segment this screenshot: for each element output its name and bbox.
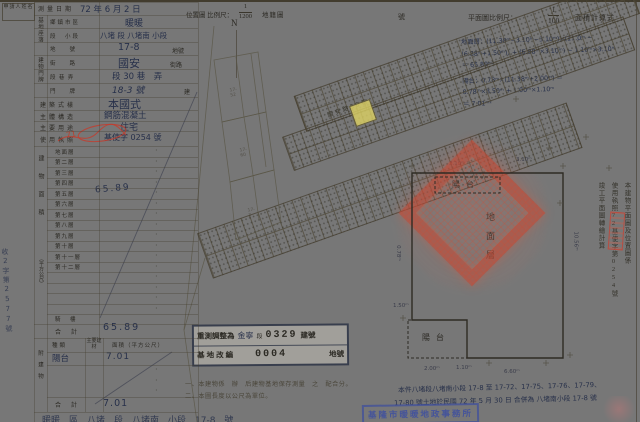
door-row-door-suffix: 建 <box>184 87 190 96</box>
floor-row-label: 地面層 <box>55 148 75 156</box>
location-scale-denominator: 1200 <box>239 13 252 21</box>
right-col-1: 本建物平面圖及位置圖係 <box>620 182 633 352</box>
north-label: N <box>231 18 238 28</box>
parcel-number: 17-60 <box>239 148 248 159</box>
table-hline <box>47 209 198 210</box>
table-hline <box>47 167 198 168</box>
resurvey-stamp-box: 重測調整為 金寧 段 0329 建號 基地改編 0004 地號 <box>192 323 349 366</box>
resurvey-label: 重測調整為 <box>197 330 235 341</box>
floor-row: 地面層 <box>47 146 198 157</box>
table-hline <box>34 83 198 84</box>
door-row-lane-label: 段 巷 弄 <box>50 73 74 81</box>
annex-row-kind: 陽台 <box>52 352 69 364</box>
floor-row-dot <box>155 178 158 187</box>
right-margin-red-stamp <box>608 212 626 251</box>
floor-row-label: 第七層 <box>55 211 75 219</box>
parcel-number: 17-3 <box>247 208 256 219</box>
floor-row <box>47 293 198 304</box>
location-map-scale-label: 位置圖 比例尺： <box>186 9 233 19</box>
table-hline <box>47 230 198 231</box>
site-row-landno-label: 地 號 <box>50 45 76 53</box>
parcel-number: 17-52 <box>229 88 238 99</box>
floor-row-dot <box>155 199 158 208</box>
floor-row-label: 第三層 <box>55 169 75 177</box>
floor-row-label: 第四層 <box>55 179 75 187</box>
table-hline <box>34 324 198 325</box>
annex-blank-rows <box>47 365 198 397</box>
door-row-street-label: 街 路 <box>50 59 76 67</box>
floor-row: 第九層 <box>47 230 198 241</box>
table-hline <box>34 131 198 132</box>
floor-row-dot <box>155 272 158 281</box>
dim-label-bottom3: 6.60ᵐ <box>504 369 520 375</box>
floor-row-label: 第十二層 <box>55 263 81 271</box>
applicant-name-box: 申請人姓名 <box>2 3 35 21</box>
table-hline <box>34 121 198 122</box>
area-unit-label: （平方公尺） <box>37 256 44 318</box>
annex-group-label: 附建物 <box>36 350 44 405</box>
site-group-label: 基地座落 <box>36 17 44 54</box>
table-hline <box>34 412 198 413</box>
annex-header-material: 主要建材 <box>86 339 102 351</box>
door-row-door-label: 門 牌 <box>50 87 76 95</box>
floor-row-dot <box>155 262 158 271</box>
table-hline <box>47 178 198 179</box>
license-value: 基使字 0254 號 <box>104 132 161 143</box>
door-row-lane-value: 段 30 巷 弄 <box>112 70 162 82</box>
floor-row-label: 第五層 <box>55 190 75 198</box>
floor-row-dot <box>155 230 158 239</box>
table-hline <box>47 304 198 305</box>
table-hline <box>34 55 198 56</box>
table-hline <box>47 293 198 294</box>
structure-label: 主體構造 <box>40 112 76 121</box>
table-hline <box>47 397 198 398</box>
table-hline <box>47 241 198 242</box>
floor-row: 第十二層 <box>47 262 198 273</box>
table-hline <box>47 262 198 263</box>
dim-label-bottom2: 1.10ᵐ <box>456 365 472 371</box>
table-vline <box>85 338 86 412</box>
land-renumber-number: 0004 <box>255 349 287 360</box>
annex-row-area: 7.01 <box>106 352 130 362</box>
table-vline <box>47 15 48 412</box>
floor-row: 第二層 <box>47 157 198 168</box>
floor-row: 第十層 <box>47 241 198 252</box>
area-total-label: 合 計 <box>55 327 79 336</box>
annex-header-area: 面積（平方公尺） <box>112 341 164 349</box>
table-hline <box>47 220 198 221</box>
resurvey-section-name: 金寧 <box>237 330 253 341</box>
north-arrow-line <box>236 30 237 78</box>
land-renumber-suffix: 地號 <box>329 348 344 359</box>
floor-row-dot <box>155 251 158 260</box>
floor-row: 第六層 <box>47 199 198 210</box>
floor-row-label: 第六層 <box>55 200 75 208</box>
dim-label-right: 10.56ᵐ <box>573 231 579 250</box>
door-group-label: 建物門牌 <box>36 57 44 95</box>
floor-row-dot <box>155 293 158 302</box>
annex-blank-dot <box>155 376 158 385</box>
table-hline <box>34 15 198 16</box>
annex-blank-dot <box>155 386 158 395</box>
resurvey-section-suffix: 段 <box>256 331 262 340</box>
floor-row-dot <box>155 157 158 166</box>
annex-total-value: 7.01 <box>103 398 128 409</box>
table-hline <box>34 69 198 70</box>
floor-row-dot <box>155 209 158 218</box>
table-hline <box>47 199 198 200</box>
table-hline <box>47 251 198 252</box>
floor-row <box>47 283 198 294</box>
door-row-door-value: 18-3 號 <box>112 83 144 96</box>
site-row-township-label: 鄉鎮市區 <box>50 18 80 26</box>
table-vline <box>99 2 100 338</box>
floor-row-dot <box>155 146 158 155</box>
floor-row-dot <box>155 304 158 313</box>
receipt-margin-note: 收2字第2577號 <box>0 248 14 338</box>
table-hline <box>34 146 198 147</box>
site-row-landno-suffix: 地號 <box>172 46 184 55</box>
table-hline <box>47 283 198 284</box>
floor-row <box>47 272 198 283</box>
right-col-3: 竣工平面圖轉繪計算 <box>594 182 607 352</box>
corner-red-smudge <box>600 396 638 422</box>
table-vline <box>34 2 35 422</box>
table-hline <box>47 188 198 189</box>
land-renumber-label: 基地改編 <box>197 349 235 360</box>
annex-header-kind: 種類 <box>52 341 67 349</box>
table-hline <box>34 42 198 43</box>
floor-row-label: 第二層 <box>55 158 75 166</box>
table-hline <box>47 157 198 158</box>
resurvey-building-number: 0329 <box>265 330 297 341</box>
site-row-section-value: 八堵 段 八堵南 小段 <box>100 30 167 41</box>
annex-total-label: 合 計 <box>55 400 79 409</box>
table-hline <box>34 28 198 29</box>
floor-row <box>47 304 198 315</box>
floor-row-label: 第八層 <box>55 221 75 229</box>
location-map-suffix: 地籍圖 <box>262 9 285 19</box>
floor-row: 第十一層 <box>47 251 198 262</box>
floor-row-label: 第十一層 <box>55 253 81 261</box>
dim-label-bottom1: 2.00ᵐ <box>424 366 440 372</box>
table-hline <box>34 110 198 111</box>
resurvey-building-suffix: 建號 <box>300 330 315 341</box>
table-vline <box>198 2 199 422</box>
right-margin-notes: 本建物平面圖及位置圖係 使用執照72基使字第0254號 竣工平面圖轉繪計算 <box>594 182 633 352</box>
annex-blank-dot <box>155 365 158 374</box>
sheet-number-label: 號 <box>398 12 405 22</box>
floor-row: 第七層 <box>47 209 198 220</box>
table-hline <box>47 365 198 366</box>
table-hline <box>34 338 198 339</box>
door-row-street-suffix: 街路 <box>170 60 182 69</box>
table-vline <box>103 338 104 412</box>
floor-row: 第八層 <box>47 220 198 231</box>
area-group-label: 建物面積 <box>36 155 45 250</box>
floor-row: 第三層 <box>47 167 198 178</box>
table-hline <box>47 314 198 315</box>
table-hline <box>34 2 198 3</box>
floor-row-label: 第九層 <box>55 232 75 240</box>
floor-row-dot <box>155 220 158 229</box>
survey-date-value: 72 年 6 月 2 日 <box>80 3 141 15</box>
table-hline <box>47 272 198 273</box>
balcony-bottom-label: 陽台 <box>422 332 450 343</box>
arcade-label: 騎 樓 <box>55 315 78 323</box>
office-blue-stamp: 基隆市暖暖地政事務所 <box>362 403 479 422</box>
table-hline <box>47 352 198 353</box>
survey-document-sheet: 申請人姓名 收2字第2577號 測量日期 72 年 6 月 2 日 基地座落 鄉… <box>0 0 640 422</box>
location-scale-numerator: 1 <box>239 4 252 13</box>
dim-label-left2: 1.50ᵐ <box>393 303 409 309</box>
footer-partial-row: 暖暖 區 八堵 段 八堵南 小段 17-8 號 <box>42 413 402 422</box>
floor-row-dot <box>155 283 158 292</box>
table-hline <box>34 97 198 98</box>
style-label: 建築式樣 <box>40 100 76 109</box>
site-row-section-label: 段 小段 <box>50 32 80 40</box>
floor-row-dot <box>155 188 158 197</box>
floor-row-dot <box>155 241 158 250</box>
printed-note-1: 一、本建物係 辦 后建物基地保存測量 之 配合分。 <box>185 379 352 388</box>
floor-row-label: 第十層 <box>55 242 75 250</box>
site-row-landno-value: 17-8 <box>118 42 140 53</box>
location-scale-fraction: 1 1200 <box>239 4 252 20</box>
right-col-2: 使用執照72基使字第0254號 <box>607 182 620 352</box>
floor-row-dot <box>155 167 158 176</box>
